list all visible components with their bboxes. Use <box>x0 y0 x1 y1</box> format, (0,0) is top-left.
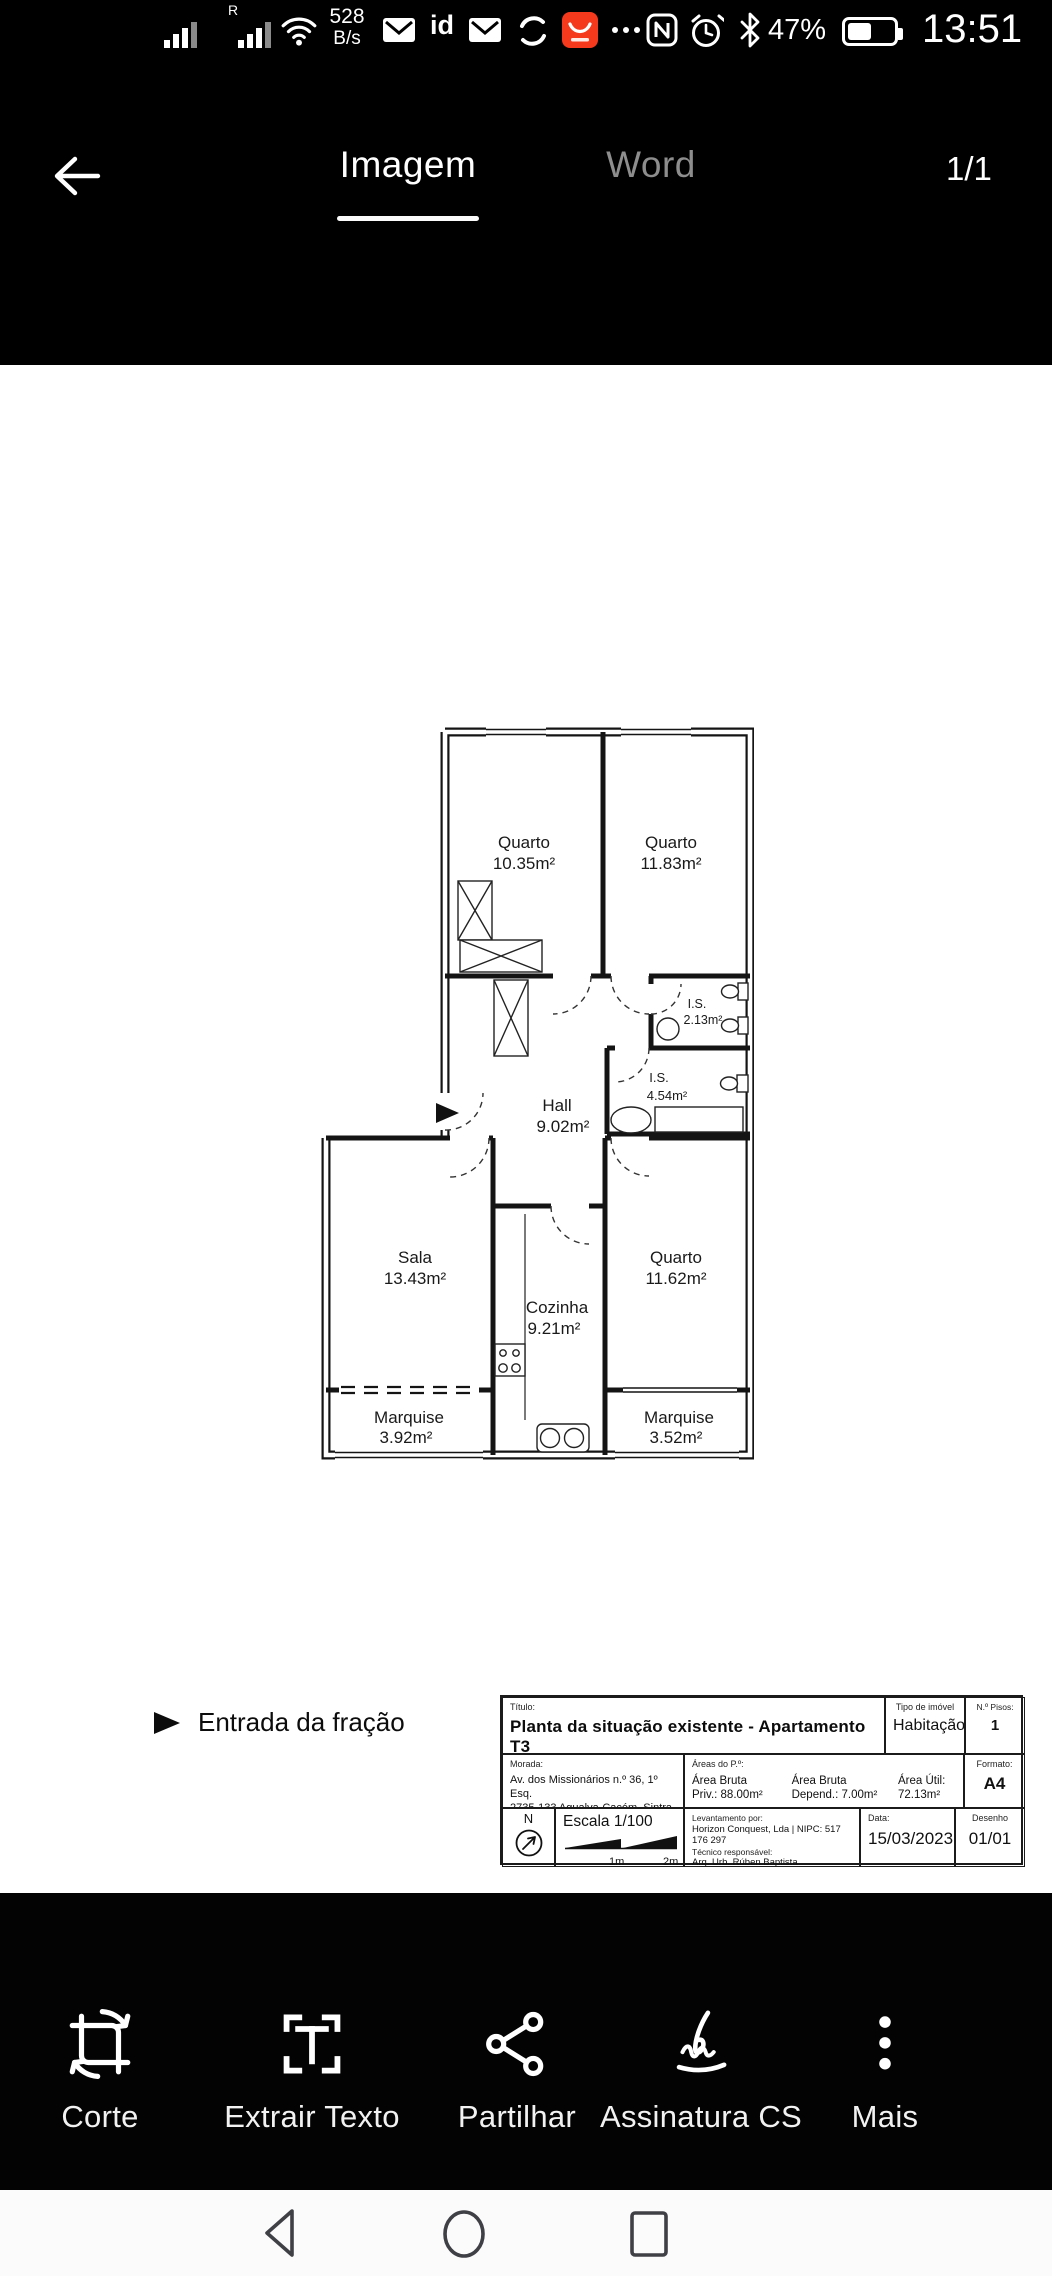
room-label: Marquise <box>374 1408 444 1427</box>
room-label: Quarto <box>645 833 697 852</box>
title-block: Título: Planta da situação existente - A… <box>500 1695 1023 1865</box>
id-notification-icon: id <box>430 10 454 41</box>
extract-text-button[interactable]: Extrair Texto <box>202 2007 422 2135</box>
signature-icon <box>664 2007 738 2081</box>
page-indicator: 1/1 <box>946 150 992 188</box>
scale-tick-1m: 1m <box>609 1856 624 1867</box>
tecnico-value: Arq. Urb. Rúben Baptista <box>692 1857 852 1867</box>
room-label: Quarto <box>650 1248 702 1267</box>
crop-button-label: Corte <box>0 2099 210 2135</box>
scale-tick-2m: 2m <box>663 1856 678 1867</box>
room-area: 11.83m² <box>640 854 701 873</box>
area-util-l1: Área Útil: <box>898 1774 956 1788</box>
clock-time: 13:51 <box>922 7 1022 52</box>
document-page: Quarto 10.35m² Quarto 11.83m² I.S. 2.13m… <box>0 365 1052 1893</box>
data-value: 15/03/2023 <box>868 1829 947 1849</box>
room-area: 9.02m² <box>537 1117 590 1136</box>
nfc-icon <box>645 12 679 48</box>
floor-plan: Quarto 10.35m² Quarto 11.83m² I.S. 2.13m… <box>319 718 754 1468</box>
tab-imagem-underline <box>337 216 479 221</box>
desenho-label: Desenho <box>963 1813 1017 1824</box>
entrance-arrow-icon <box>436 1103 459 1123</box>
tipo-label: Tipo de imóvel <box>893 1702 957 1713</box>
status-bar: R 528 B/s id <box>0 0 1052 64</box>
bluetooth-icon <box>738 10 762 50</box>
title-block-titulo-cell: Título: Planta da situação existente - A… <box>502 1697 885 1754</box>
room-area: 2.13m² <box>684 1013 723 1027</box>
room-area: 4.54m² <box>647 1088 688 1103</box>
nav-recents-button[interactable] <box>629 2210 669 2258</box>
sync-icon <box>516 14 550 48</box>
nav-home-button[interactable] <box>441 2208 487 2260</box>
bottom-toolbar: Corte Extrair Texto <box>0 1893 1052 2190</box>
room-area: 3.92m² <box>380 1428 433 1447</box>
area-bruta-dep-l1: Área Bruta <box>792 1774 898 1788</box>
screen: R 528 B/s id <box>0 0 1052 2276</box>
levantamento-label: Levantamento por: <box>692 1813 852 1824</box>
morada-label: Morada: <box>510 1759 676 1770</box>
areas-label: Áreas do P.º: <box>692 1759 956 1770</box>
room-area: 10.35m² <box>493 854 556 873</box>
area-bruta-priv-l1: Área Bruta <box>692 1774 792 1788</box>
extract-text-button-label: Extrair Texto <box>202 2099 422 2135</box>
network-speed-value: 528 <box>322 6 372 28</box>
more-button-label: Mais <box>775 2099 995 2135</box>
tecnico-label: Técnico responsável: <box>692 1847 852 1858</box>
tab-imagem[interactable]: Imagem <box>330 144 486 186</box>
escala-label: Escala 1/100 <box>563 1813 676 1831</box>
pisos-label: N.º Pisos: <box>973 1702 1017 1713</box>
north-label: N <box>505 1811 552 1826</box>
entrance-legend-label: Entrada da fração <box>198 1707 405 1738</box>
room-label: I.S. <box>688 997 707 1011</box>
area-bruta-dep-l2: Depend.: 7.00m² <box>792 1788 898 1802</box>
formato-value: A4 <box>972 1774 1017 1794</box>
title-block-desenho-cell: Desenho 01/01 <box>955 1808 1025 1867</box>
entrance-legend-arrow-icon <box>153 1711 181 1735</box>
data-label: Data: <box>868 1813 947 1824</box>
more-button[interactable]: Mais <box>775 2007 995 2135</box>
back-button[interactable] <box>48 150 104 202</box>
tipo-value: Habitação <box>893 1717 957 1735</box>
room-area: 3.52m² <box>650 1428 703 1447</box>
morada-line2: 2735-133 Agualva-Cacém, Sintra <box>510 1801 676 1808</box>
title-block-north-cell: N <box>502 1808 555 1867</box>
crop-rotate-icon <box>63 2007 137 2081</box>
title-block-pisos-cell: N.º Pisos: 1 <box>965 1697 1025 1754</box>
title-block-areas-cell: Áreas do P.º: Área Bruta Priv.: 88.00m² … <box>684 1754 964 1808</box>
app-bar: Imagem Word 1/1 <box>0 64 1052 365</box>
titulo-label: Título: <box>510 1702 877 1713</box>
desenho-value: 01/01 <box>963 1829 1017 1849</box>
room-label: Sala <box>398 1248 433 1267</box>
north-compass-icon <box>514 1826 544 1858</box>
room-label: Marquise <box>644 1408 714 1427</box>
scale-bar <box>563 1833 679 1851</box>
room-label: I.S. <box>649 1070 669 1085</box>
room-label: Hall <box>542 1096 571 1115</box>
nav-back-button[interactable] <box>258 2206 298 2260</box>
signal-strength-icon-1 <box>162 16 198 50</box>
room-label: Quarto <box>498 833 550 852</box>
share-icon <box>480 2007 554 2081</box>
drawing-title: Planta da situação existente - Apartamen… <box>510 1717 877 1754</box>
area-bruta-priv-l2: Priv.: 88.00m² <box>692 1788 792 1802</box>
title-block-levantamento-cell: Levantamento por: Horizon Conquest, Lda … <box>684 1808 860 1867</box>
aliexpress-app-icon <box>562 12 598 48</box>
signal-strength-icon-2 <box>236 16 272 50</box>
more-vertical-icon <box>848 2007 922 2081</box>
room-label: Cozinha <box>526 1298 589 1317</box>
wifi-icon <box>280 14 318 46</box>
extract-text-icon <box>275 2007 349 2081</box>
battery-icon <box>842 17 898 46</box>
levantamento-value: Horizon Conquest, Lda | NIPC: 517 176 29… <box>692 1824 852 1847</box>
battery-percent: 47% <box>768 14 826 47</box>
more-notifications-icon <box>612 27 640 33</box>
title-block-tipo-cell: Tipo de imóvel Habitação <box>885 1697 965 1754</box>
title-block-formato-cell: Formato: A4 <box>964 1754 1025 1808</box>
room-area: 9.21m² <box>528 1319 581 1338</box>
network-speed-unit: B/s <box>322 28 372 50</box>
title-block-morada-cell: Morada: Av. dos Missionários n.º 36, 1º … <box>502 1754 684 1808</box>
tab-word[interactable]: Word <box>596 144 706 186</box>
area-util-l2: 72.13m² <box>898 1788 956 1802</box>
android-navigation-bar <box>0 2190 1052 2276</box>
crop-button[interactable]: Corte <box>0 2007 210 2135</box>
room-area: 11.62m² <box>645 1269 706 1288</box>
mail-icon-1 <box>382 17 416 43</box>
formato-label: Formato: <box>972 1759 1017 1770</box>
entrance-legend: Entrada da fração <box>153 1707 405 1738</box>
mail-icon-2 <box>468 17 502 43</box>
room-area: 13.43m² <box>384 1269 447 1288</box>
title-block-data-cell: Data: 15/03/2023 <box>860 1808 955 1867</box>
title-block-escala-cell: Escala 1/100 1m 2m <box>555 1808 684 1867</box>
morada-line1: Av. dos Missionários n.º 36, 1º Esq. <box>510 1773 676 1801</box>
alarm-icon <box>688 10 724 50</box>
pisos-value: 1 <box>973 1717 1017 1734</box>
